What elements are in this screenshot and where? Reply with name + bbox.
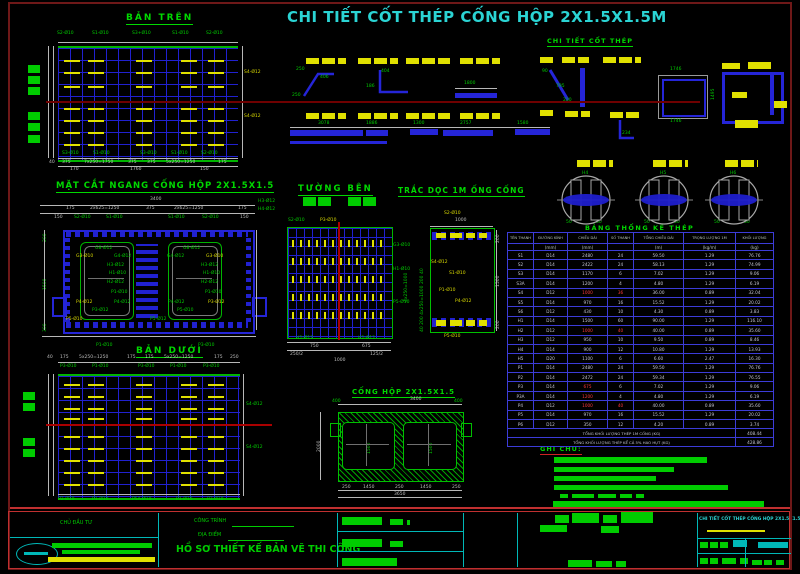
annotation-label: 186 bbox=[366, 85, 375, 90]
table-cell: D14 bbox=[534, 373, 568, 382]
table-cell: 675 bbox=[568, 382, 608, 391]
table-cell: 1.29 bbox=[684, 279, 736, 288]
table-cell: 59.34 bbox=[634, 373, 684, 382]
wall-rebar-tick bbox=[372, 258, 374, 265]
top-slab-hatch bbox=[66, 232, 248, 237]
dimension-line bbox=[42, 336, 256, 337]
bottom-slab-hatch bbox=[66, 322, 248, 328]
annotation-label: S1-Ø10 bbox=[106, 216, 123, 221]
annotation-label: P5-Ø12 bbox=[150, 318, 166, 323]
chi-tiet-cot-thep-heading: CHI TIẾT CỐT THÉP bbox=[547, 37, 633, 47]
table-cell: 24 bbox=[608, 251, 634, 260]
plan-rebar-tick bbox=[208, 72, 224, 74]
plan-rebar-tick bbox=[181, 472, 197, 474]
plan-rebar-tick bbox=[181, 144, 197, 146]
table-cell: 430 bbox=[568, 307, 608, 316]
table-cell: D14 bbox=[534, 297, 568, 306]
annotation-label: S4-Ø12 bbox=[246, 403, 263, 408]
plan-rebar-tick bbox=[64, 60, 80, 62]
table-cell: 6 bbox=[608, 382, 634, 391]
table-cell: 6.19 bbox=[736, 391, 774, 400]
annotation-label: P4-Ø12 bbox=[168, 301, 184, 306]
annotation-label: P4-Ø12 bbox=[114, 301, 130, 306]
plan-rebar-tick bbox=[181, 86, 197, 88]
rebar-shape-bar bbox=[603, 57, 641, 63]
annotation-label: P1-Ø10 bbox=[111, 291, 127, 296]
rebar-shape-bar bbox=[479, 320, 487, 326]
titleblock-divider bbox=[337, 531, 463, 532]
dimension-line bbox=[496, 230, 497, 331]
annotation-label: G8-Ø12 bbox=[95, 247, 112, 252]
dimension-line bbox=[287, 342, 391, 343]
plan-rebar-tick bbox=[64, 418, 80, 420]
table-cell: D14 bbox=[534, 382, 568, 391]
table-cell: P5 bbox=[508, 410, 534, 419]
dimension-line bbox=[338, 497, 462, 498]
straight-bar-detail bbox=[515, 129, 550, 135]
rebar-shape-bar bbox=[653, 160, 688, 167]
annotation-label: 375 bbox=[128, 161, 137, 166]
table-cell: 16 bbox=[608, 297, 634, 306]
table-cell: 9.06 bbox=[736, 269, 774, 278]
table-cell: 9.06 bbox=[736, 382, 774, 391]
annotation-label: 750 bbox=[310, 345, 319, 350]
wall-rebar-tick bbox=[308, 276, 310, 283]
table-cell: 12 bbox=[608, 420, 634, 429]
annotation-label: S4-Ø12 bbox=[431, 261, 448, 266]
annotation-label: 4x250=1000 bbox=[405, 273, 410, 302]
wall-rebar-tick bbox=[332, 312, 334, 319]
table-cell: 76.76 bbox=[736, 251, 774, 260]
rebar-shape-bar bbox=[725, 160, 758, 167]
table-cell: S4 bbox=[508, 288, 534, 297]
table-cell: 20.02 bbox=[736, 297, 774, 306]
dimension-line bbox=[338, 490, 462, 491]
annotation-label: G3-Ø10 bbox=[393, 244, 410, 249]
annotation-label: P5-Ø10 bbox=[66, 318, 82, 323]
plan-rebar-tick bbox=[136, 144, 152, 146]
table-units-cell: (mm) bbox=[568, 244, 608, 251]
titleblock-underline bbox=[232, 526, 294, 527]
titleblock-divider bbox=[697, 538, 791, 539]
plan-rebar-tick bbox=[136, 108, 152, 110]
table-cell: H4 bbox=[508, 344, 534, 353]
plan-rebar-tick bbox=[136, 396, 152, 398]
annotation-label: 1500 bbox=[497, 276, 502, 287]
annotation-label: P1-Ø10 bbox=[92, 365, 108, 370]
table-units-cell: (m) bbox=[634, 244, 684, 251]
annotation-label: S4-Ø12 bbox=[246, 446, 263, 451]
table-cell: S3 bbox=[508, 269, 534, 278]
note-text-line bbox=[598, 494, 616, 498]
table-cell: 1.29 bbox=[684, 269, 736, 278]
wall-rebar-tick bbox=[292, 294, 294, 301]
table-cell: 40.00 bbox=[634, 401, 684, 410]
annotation-label: S1-Ø10 bbox=[92, 32, 109, 37]
table-cell: 1.29 bbox=[684, 363, 736, 372]
plan-rebar-tick bbox=[181, 132, 197, 134]
table-cell: 1000 bbox=[568, 288, 608, 297]
table-units-cell bbox=[608, 244, 634, 251]
wall-rebar-tick bbox=[324, 276, 326, 283]
table-header-cell: TÊN THANH bbox=[508, 233, 534, 244]
rebar-shape-bar bbox=[577, 160, 613, 167]
rebar-shape-bar bbox=[406, 58, 450, 64]
annotation-label: 5x250=1250 bbox=[166, 161, 195, 166]
wall-rebar-tick bbox=[316, 294, 318, 301]
plan-rebar-tick bbox=[208, 484, 224, 486]
plan-rebar-tick bbox=[181, 460, 197, 462]
table-cell: 9.50 bbox=[634, 335, 684, 344]
plan-rebar-tick bbox=[181, 484, 197, 486]
table-cell: 60 bbox=[608, 316, 634, 325]
table-cell: 8.46 bbox=[736, 335, 774, 344]
annotation-label: H2-Ø12 bbox=[107, 281, 124, 286]
table-cell: 2480 bbox=[568, 251, 608, 260]
cell-cross-line bbox=[176, 278, 212, 279]
annotation-label: 375 bbox=[62, 161, 71, 166]
dimension-line bbox=[58, 166, 238, 167]
straight-bar-detail bbox=[455, 93, 497, 98]
table-cell: 1200 bbox=[568, 279, 608, 288]
rebar-shape-bar bbox=[450, 233, 462, 238]
wall-rebar-tick bbox=[308, 312, 310, 319]
table-cell: 6.60 bbox=[634, 354, 684, 363]
annotation-label: 1760 bbox=[130, 168, 141, 173]
rebar-shape-bar bbox=[610, 112, 640, 118]
table-cell: 970 bbox=[568, 297, 608, 306]
table-cell: H2 bbox=[508, 326, 534, 335]
table-cell: D14 bbox=[534, 269, 568, 278]
circular-bar-detail bbox=[633, 174, 695, 228]
dim-text-block bbox=[28, 65, 40, 73]
plan-rebar-tick bbox=[88, 396, 104, 398]
annotation-label: P3-Ø10 bbox=[138, 365, 154, 370]
wall-rebar-tick bbox=[316, 312, 318, 319]
annotation-label: H1-Ø10 bbox=[109, 272, 126, 277]
table-cell: S2 bbox=[508, 260, 534, 269]
note-text-line bbox=[560, 494, 568, 498]
table-cell: 35.60 bbox=[736, 326, 774, 335]
dim-text-block bbox=[23, 392, 35, 400]
dimension-line bbox=[338, 404, 462, 405]
plan-rebar-tick bbox=[88, 418, 104, 420]
table-cell: D14 bbox=[534, 391, 568, 400]
cell-cross-line bbox=[428, 424, 429, 466]
dimension-line bbox=[53, 374, 54, 496]
table-cell: 1100 bbox=[568, 354, 608, 363]
table-cell: 24 bbox=[608, 373, 634, 382]
straight-bar-detail bbox=[410, 129, 438, 135]
annotation-label: 5x250=1250 bbox=[164, 356, 193, 361]
table-cell: S1 bbox=[508, 251, 534, 260]
plan-rebar-tick bbox=[64, 384, 80, 386]
plan-rebar-tick bbox=[208, 436, 224, 438]
wall-rebar-tick bbox=[380, 258, 382, 265]
dim-text-block bbox=[28, 123, 40, 131]
dimension-line bbox=[48, 374, 49, 496]
plan-rebar-tick bbox=[181, 60, 197, 62]
wall-rebar-tick bbox=[292, 276, 294, 283]
table-cell: D14 bbox=[534, 410, 568, 419]
annotation-label: 3400 bbox=[150, 198, 161, 203]
rebar-shape-bar bbox=[436, 320, 446, 326]
table-cell: P4 bbox=[508, 401, 534, 410]
table-cell: 36.00 bbox=[634, 288, 684, 297]
annotation-label: 375 bbox=[147, 161, 156, 166]
annotation-label: H3-Ø12 bbox=[258, 200, 275, 205]
table-cell: 6.19 bbox=[736, 279, 774, 288]
annotation-label: 175 bbox=[238, 207, 247, 212]
wall-rebar-tick bbox=[300, 240, 302, 247]
annotation-label: 200 bbox=[497, 320, 502, 329]
plan-rebar-tick bbox=[64, 396, 80, 398]
section-heading-trac-doc: TRẮC DỌC 1M ỐNG CỐNG bbox=[398, 186, 525, 197]
table-cell: 20.02 bbox=[736, 410, 774, 419]
table-cell: 24 bbox=[608, 260, 634, 269]
table-cell: 0.89 bbox=[684, 288, 736, 297]
table-cell: 16.30 bbox=[736, 354, 774, 363]
wall-rebar-tick bbox=[348, 258, 350, 265]
plan-rebar-tick bbox=[136, 60, 152, 62]
annotation-label: P4-Ø12 bbox=[76, 301, 92, 306]
plan-rebar-tick bbox=[88, 144, 104, 146]
plan-rebar-tick bbox=[136, 72, 152, 74]
annotation-label: 150 bbox=[240, 216, 249, 221]
stirrup-bar bbox=[662, 79, 706, 117]
annotation-label: P1-Ø10 bbox=[170, 365, 186, 370]
annotation-label: P5A-Ø10 bbox=[132, 498, 151, 503]
plan-rebar-tick bbox=[88, 408, 104, 410]
wall-rebar-tick bbox=[356, 240, 358, 247]
plan-rebar-tick bbox=[64, 72, 80, 74]
annotation-label: 1000 bbox=[455, 219, 466, 224]
wall-rebar-tick bbox=[332, 276, 334, 283]
table-footer-value: 408.44 bbox=[736, 429, 774, 438]
plan-rebar-tick bbox=[88, 132, 104, 134]
dimension-line bbox=[256, 230, 257, 330]
table-cell: H1 bbox=[508, 316, 534, 325]
cell-cross-line bbox=[407, 444, 451, 445]
table-cell: 950 bbox=[568, 335, 608, 344]
table-cell: 10 bbox=[608, 307, 634, 316]
wall-rebar-tick bbox=[348, 240, 350, 247]
note-text-line bbox=[554, 467, 674, 472]
annotation-label: S2-Ø10 bbox=[57, 32, 74, 37]
straight-bar-detail bbox=[366, 130, 388, 136]
steel-table: TÊN THANHĐƯỜNG KÍNHCHIỀU DÀISỐ THANHTỔNG… bbox=[507, 232, 774, 447]
annotation-label: G4-Ø12 bbox=[114, 255, 131, 260]
annotation-label: P5-Ø10 bbox=[177, 309, 193, 314]
wall-rebar-tick bbox=[308, 294, 310, 301]
table-cell: 1.29 bbox=[684, 391, 736, 400]
annotation-label: S2-Ø10 bbox=[74, 216, 91, 221]
plan-rebar-tick bbox=[136, 460, 152, 462]
annotation-label: G4-Ø12 bbox=[167, 255, 184, 260]
table-footer-label: TỔNG KHỐI LƯỢNG THÉP KỂ CẢ 5% HAO HỤT (K… bbox=[508, 438, 736, 447]
note-text-line bbox=[554, 485, 728, 490]
annotation-label: 175 bbox=[66, 207, 75, 212]
table-units-cell: (mm) bbox=[534, 244, 568, 251]
table-cell: 1.29 bbox=[684, 344, 736, 353]
wall-rebar-tick bbox=[356, 312, 358, 319]
table-cell: 970 bbox=[568, 410, 608, 419]
annotation-label: 40 bbox=[47, 356, 53, 361]
annotation-label: 250 bbox=[296, 68, 305, 73]
annotation-label: 5x250=1250 bbox=[79, 356, 108, 361]
table-cell: D12 bbox=[534, 307, 568, 316]
table-cell: 1.29 bbox=[684, 297, 736, 306]
plan-rebar-tick bbox=[88, 60, 104, 62]
rebar-shape-bar bbox=[306, 58, 346, 64]
rebar-shape-bar bbox=[540, 110, 553, 116]
note-text-line bbox=[620, 494, 632, 498]
titleblock-divider bbox=[10, 537, 158, 538]
rebar-shape-bar bbox=[540, 57, 553, 63]
annotation-label: 250 bbox=[292, 94, 301, 99]
wall-rebar-tick bbox=[324, 294, 326, 301]
plan-rebar-tick bbox=[208, 384, 224, 386]
dimension-line bbox=[58, 42, 238, 43]
plan-rebar-tick bbox=[181, 108, 197, 110]
dimension-line bbox=[58, 362, 240, 363]
table-cell: S6 bbox=[508, 307, 534, 316]
table-cell: 15.52 bbox=[634, 410, 684, 419]
annotation-label: S1-Ø10 bbox=[171, 152, 188, 157]
annotation-label: P3-Ø10 bbox=[207, 498, 223, 503]
annotation-label: 250 bbox=[230, 356, 239, 361]
table-cell: 0.89 bbox=[684, 335, 736, 344]
table-header-cell: ĐƯỜNG KÍNH bbox=[534, 233, 568, 244]
table-cell: 2.47 bbox=[684, 354, 736, 363]
plan-rebar-tick bbox=[181, 72, 197, 74]
plan-rebar-tick bbox=[208, 120, 224, 122]
plan-rebar-tick bbox=[64, 408, 80, 410]
annotation-label: H2-Ø12 bbox=[358, 337, 375, 342]
plan-rebar-tick bbox=[64, 448, 80, 450]
circular-bar-detail bbox=[555, 174, 617, 228]
note-text-line bbox=[554, 457, 707, 463]
table-cell: 12 bbox=[608, 344, 634, 353]
table-cell: S5 bbox=[508, 297, 534, 306]
wall-rebar-tick bbox=[340, 312, 342, 319]
centerline bbox=[8, 507, 792, 509]
table-cell: 1.29 bbox=[684, 316, 736, 325]
table-cell: 350 bbox=[568, 420, 608, 429]
annotation-label: 2757 bbox=[460, 122, 471, 127]
wall-rebar-tick bbox=[316, 240, 318, 247]
wall-rebar-tick bbox=[372, 294, 374, 301]
plan-rebar-tick bbox=[64, 472, 80, 474]
dimension-line bbox=[290, 127, 550, 128]
cell-cross-line bbox=[366, 424, 367, 466]
annotation-label: S3-Ø10 bbox=[62, 152, 79, 157]
annotation-label: 1746 bbox=[670, 120, 681, 125]
table-header-cell: SỐ THANH bbox=[608, 233, 634, 244]
dim-text-block bbox=[28, 76, 40, 84]
plan-rebar-tick bbox=[64, 132, 80, 134]
table-cell: 13.93 bbox=[736, 344, 774, 353]
table-cell: 40 bbox=[608, 326, 634, 335]
annotation-label: 175 bbox=[127, 356, 136, 361]
circular-bar-detail bbox=[703, 174, 765, 228]
table-cell: 4 bbox=[608, 391, 634, 400]
annotation-label: 175 bbox=[214, 356, 223, 361]
dimension-line bbox=[40, 205, 255, 206]
table-cell: 2472 bbox=[568, 373, 608, 382]
annotation-label: P1-Ø10 bbox=[205, 291, 221, 296]
annotation-label: 200 bbox=[497, 234, 502, 243]
plan-rebar-tick bbox=[136, 436, 152, 438]
titleblock-border bbox=[8, 511, 790, 569]
annotation-label: H2-Ø12 bbox=[201, 281, 218, 286]
table-cell: 1000 bbox=[568, 401, 608, 410]
wall-rebar-tick bbox=[372, 276, 374, 283]
plan-rebar-tick bbox=[136, 418, 152, 420]
rebar-shape-bar bbox=[748, 62, 771, 69]
plan-rebar-tick bbox=[64, 120, 80, 122]
table-cell: P6 bbox=[508, 420, 534, 429]
wall-rebar-tick bbox=[292, 312, 294, 319]
plan-rebar-tick bbox=[136, 384, 152, 386]
table-cell: 6 bbox=[608, 354, 634, 363]
plan-rebar-tick bbox=[136, 448, 152, 450]
plan-rebar-tick bbox=[181, 120, 197, 122]
annotation-label: 1580 bbox=[517, 122, 528, 127]
wall-rebar-tick bbox=[332, 240, 334, 247]
plan-rebar-tick bbox=[181, 384, 197, 386]
wall-rebar-tick bbox=[300, 312, 302, 319]
wall-rebar-tick bbox=[380, 276, 382, 283]
table-cell: 4.30 bbox=[634, 307, 684, 316]
dimension-line bbox=[243, 374, 244, 496]
annotation-label: 150 bbox=[200, 168, 209, 173]
straight-bar-detail bbox=[770, 75, 774, 115]
left-haunch bbox=[52, 297, 67, 317]
plan-rebar-tick bbox=[208, 132, 224, 134]
table-cell: 40 bbox=[608, 401, 634, 410]
annotation-label: P3-Ø12 bbox=[208, 301, 224, 306]
dim-text-block bbox=[28, 112, 40, 120]
annotation-label: 1300 bbox=[413, 122, 424, 127]
wall-rebar-tick bbox=[348, 294, 350, 301]
wall-rebar-tick bbox=[324, 312, 326, 319]
plan-rebar-tick bbox=[181, 448, 197, 450]
table-cell: P1 bbox=[508, 363, 534, 372]
rebar-shape-bar bbox=[772, 101, 787, 108]
dim-text-block bbox=[28, 135, 40, 143]
bent-bar-detail-2 bbox=[370, 64, 412, 98]
annotation-label: H3-Ø12 bbox=[107, 264, 124, 269]
dimension-line bbox=[287, 350, 391, 351]
annotation-label: S2-Ø10 bbox=[206, 32, 223, 37]
right-wall-hatch bbox=[246, 238, 251, 322]
dim-text-block bbox=[318, 197, 331, 206]
straight-bar-detail bbox=[443, 130, 493, 136]
table-cell: D12 bbox=[534, 401, 568, 410]
table-header-cell: KHỐI LƯỢNG bbox=[736, 233, 774, 244]
table-cell: 4.20 bbox=[634, 420, 684, 429]
rebar-shape-bar bbox=[466, 320, 475, 326]
table-cell: 35.60 bbox=[736, 401, 774, 410]
dim-text-block bbox=[28, 87, 40, 95]
annotation-label: 1800 bbox=[464, 82, 475, 87]
table-cell: 1000 bbox=[568, 326, 608, 335]
annotation-label: 1886 bbox=[366, 122, 377, 127]
table-cell: H3 bbox=[508, 335, 534, 344]
table-cell: 6 bbox=[608, 269, 634, 278]
rebar-shape-bar bbox=[358, 113, 398, 119]
